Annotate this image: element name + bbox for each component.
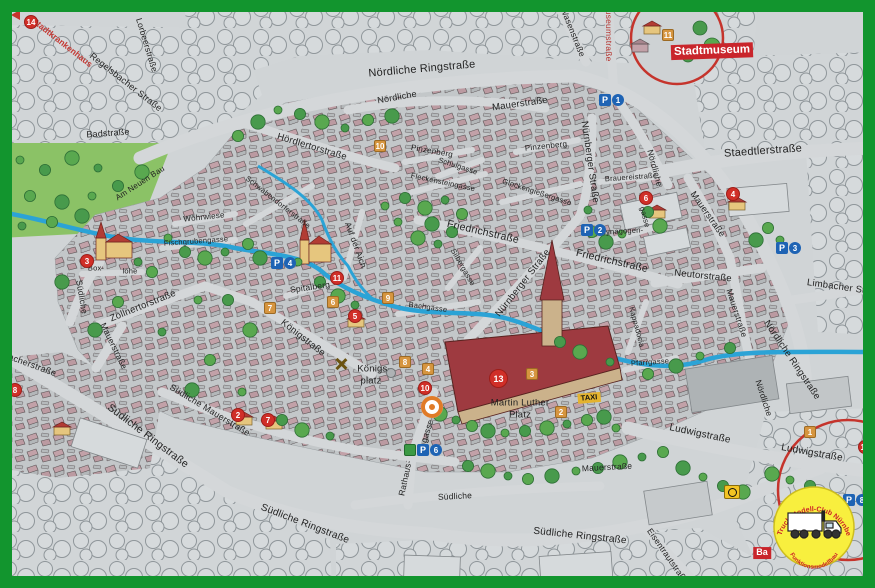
tree-icon — [164, 234, 172, 242]
tree-icon — [653, 219, 667, 233]
tree-icon — [381, 202, 389, 210]
tree-icon — [540, 421, 554, 435]
tree-icon — [232, 130, 243, 141]
tree-icon — [736, 485, 750, 499]
tree-icon — [545, 469, 559, 483]
tree-icon — [326, 432, 334, 440]
tree-icon — [243, 323, 257, 337]
tree-icon — [452, 416, 460, 424]
tree-icon — [65, 151, 79, 165]
tree-icon — [612, 424, 620, 432]
tree-icon — [55, 275, 69, 289]
tree-icon — [425, 217, 439, 231]
tree-icon — [456, 208, 467, 219]
tree-icon — [418, 201, 432, 215]
tree-icon — [46, 216, 57, 227]
tree-icon — [481, 424, 495, 438]
tree-icon — [274, 106, 282, 114]
tree-icon — [762, 222, 773, 233]
club-logo: 1. Truck-Modell-Club Nürnberg Funktionsm… — [762, 475, 866, 579]
tree-icon — [94, 164, 102, 172]
tree-icon — [613, 455, 627, 469]
tree-icon — [112, 180, 123, 191]
tree-icon — [276, 414, 287, 425]
tree-icon — [88, 192, 96, 200]
tree-icon — [18, 222, 26, 230]
tree-icon — [584, 206, 592, 214]
tree-icon — [394, 218, 402, 226]
city-map-photo: LorbeerstraßeRegelsbacher StraßeBadstraß… — [0, 0, 875, 588]
tree-icon — [501, 429, 509, 437]
tree-icon — [242, 238, 253, 249]
tree-icon — [434, 240, 442, 248]
tree-icon — [75, 209, 89, 223]
tree-icon — [642, 206, 653, 217]
tree-icon — [362, 114, 373, 125]
tree-icon — [642, 368, 653, 379]
tree-icon — [146, 266, 157, 277]
tree-icon — [669, 359, 683, 373]
tree-icon — [519, 425, 530, 436]
tree-icon — [573, 345, 587, 359]
tree-icon — [581, 414, 592, 425]
tree-icon — [351, 301, 359, 309]
tree-icon — [294, 108, 305, 119]
tree-icon — [39, 164, 50, 175]
tree-icon — [592, 462, 603, 473]
tree-icon — [341, 124, 349, 132]
tree-icon — [221, 248, 229, 256]
tree-icon — [204, 354, 215, 365]
tree-icon — [554, 336, 565, 347]
stadtmuseum-inset — [631, 0, 723, 84]
tree-icon — [599, 235, 613, 249]
tree-icon — [466, 420, 477, 431]
tree-icon — [295, 423, 309, 437]
tree-icon — [462, 460, 473, 471]
tree-icon — [481, 464, 495, 478]
tree-icon — [776, 236, 784, 244]
tree-icon — [411, 231, 425, 245]
tree-icon — [618, 230, 626, 238]
tree-icon — [676, 461, 690, 475]
tree-icon — [194, 296, 202, 304]
tree-icon — [55, 195, 69, 209]
tree-icon — [315, 115, 329, 129]
tree-icon — [134, 258, 142, 266]
tree-icon — [522, 473, 533, 484]
tree-icon — [696, 352, 704, 360]
tree-icon — [717, 480, 728, 491]
tree-icon — [563, 420, 571, 428]
tree-icon — [198, 251, 212, 265]
tree-icon — [399, 192, 410, 203]
tree-icon — [88, 323, 102, 337]
tree-icon — [597, 410, 611, 424]
tree-icon — [135, 165, 149, 179]
tree-icon — [294, 258, 302, 266]
tree-icon — [441, 196, 449, 204]
tree-icon — [572, 467, 580, 475]
tree-icon — [112, 296, 123, 307]
tree-icon — [185, 383, 199, 397]
tree-icon — [222, 294, 233, 305]
tree-icon — [314, 276, 325, 287]
tree-icon — [24, 190, 35, 201]
tree-icon — [606, 358, 614, 366]
tree-icon — [16, 156, 24, 164]
tree-icon — [657, 446, 668, 457]
tree-icon — [638, 453, 646, 461]
tree-icon — [158, 328, 166, 336]
tree-icon — [504, 472, 512, 480]
tree-icon — [749, 233, 763, 247]
tree-icon — [586, 226, 597, 237]
tree-icon — [331, 289, 345, 303]
tree-icon — [433, 407, 447, 421]
tree-icon — [385, 109, 399, 123]
tree-icon — [446, 226, 457, 237]
tree-icon — [238, 388, 246, 396]
tree-icon — [253, 251, 267, 265]
tree-icon — [724, 342, 735, 353]
city-map-illustration — [0, 0, 875, 588]
tree-icon — [699, 473, 707, 481]
tree-icon — [251, 115, 265, 129]
tree-icon — [179, 246, 190, 257]
